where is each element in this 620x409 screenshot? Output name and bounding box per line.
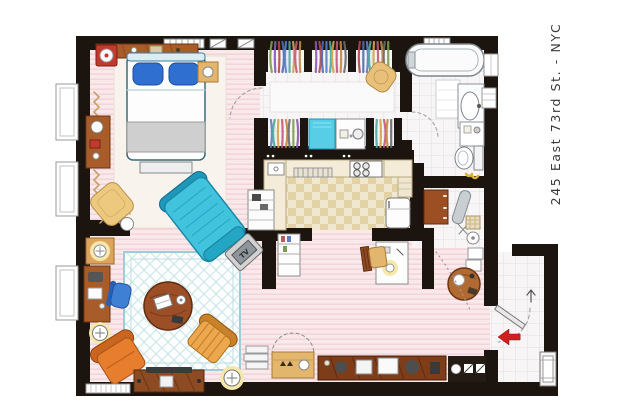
bed-foot-bench [140, 162, 192, 173]
sideboard-item-white-1 [356, 360, 372, 374]
plan-title: 245 East 73rd St. - NYC [548, 19, 570, 209]
nook-lamp [386, 264, 394, 272]
vanity-item-dot [93, 153, 99, 159]
shoe-box-1 [468, 248, 483, 259]
laundry-basket [466, 216, 480, 229]
magazine-stack-1 [246, 346, 268, 353]
washer-door-square [340, 130, 348, 138]
speaker-red-dot [105, 54, 109, 58]
fridge-handle [388, 201, 390, 208]
bedroom-side-dot-table [121, 218, 134, 231]
bookshelf-book-3 [283, 246, 287, 252]
bed-blanket [127, 122, 205, 152]
bed-headboard [127, 53, 205, 61]
vanity-mirror [91, 121, 103, 133]
desk-typewriter [88, 272, 103, 282]
dresser-knob [176, 48, 180, 52]
stereo-item-1 [252, 194, 261, 201]
bed-pillow-left [133, 63, 163, 85]
trunk-dish [299, 360, 309, 370]
washer-door-round [353, 129, 363, 139]
floor-entry-corridor [490, 252, 546, 384]
bathroom-sink-basin [461, 92, 479, 120]
stove-burner-1 [354, 163, 360, 169]
washer-dot [350, 135, 353, 138]
stove-burner-2 [363, 163, 369, 169]
tv-console-knob-2 [197, 379, 201, 383]
stove-burner-3 [354, 170, 360, 176]
kitchen-sink [268, 163, 284, 175]
closet-post-1 [260, 38, 268, 72]
wall-nook-right [422, 241, 434, 289]
kitchen-tall-cabinet [398, 177, 412, 197]
kitchen-counter-right [384, 160, 412, 177]
window-3 [56, 266, 78, 320]
bathtub-faucet [408, 52, 415, 68]
tv-console-box [160, 376, 173, 387]
magazine-stack-2 [244, 354, 268, 361]
window-1 [56, 84, 78, 140]
dresser-tray [150, 46, 162, 53]
sideboard-item-dark-3 [430, 362, 440, 374]
closet-post-3 [348, 38, 356, 72]
vanity-item-red [90, 140, 100, 148]
desk-paper [88, 288, 102, 299]
wall-corridor-top-stub [512, 244, 558, 256]
tv-console-knob-1 [137, 379, 141, 383]
closet-post-2 [304, 38, 312, 72]
bistro-plate [454, 275, 465, 286]
sideboard-knob [325, 361, 330, 366]
wall-kitchen-bottom-right [372, 228, 434, 241]
wall-bathroom-left-a [400, 36, 412, 112]
tv-console-tv [146, 367, 192, 373]
magazine-stack-3 [246, 362, 268, 369]
floor-plan-page: TV 245 East 73rd St. - NYC [0, 0, 620, 409]
bed-pillow-right [169, 63, 199, 85]
window-2 [56, 162, 78, 216]
stereo-item-2 [260, 204, 268, 210]
plan-elements: TV [56, 36, 558, 396]
bistro-cup [470, 274, 475, 279]
sideboard-item-white-2 [378, 358, 398, 374]
wall-tv-corner [262, 241, 276, 289]
wall-right-lower [484, 350, 498, 396]
bathroom-cabinet-roll [474, 127, 480, 133]
wall-inlay-circle [452, 365, 461, 374]
bathroom-wall-niche [482, 88, 496, 108]
sideboard-item-dark-1 [335, 361, 347, 373]
bookshelf-book-1 [281, 236, 285, 242]
closet-post-4 [392, 38, 400, 72]
closet-clothes-top-1 [270, 42, 300, 72]
wall-right-mid [484, 188, 498, 306]
nook-chair-seat [369, 246, 388, 268]
coffee-cup-dot [180, 299, 183, 302]
nightstand-lamp [203, 67, 213, 77]
floor-plan-drawing: TV [0, 0, 620, 409]
bookshelf-book-2 [287, 236, 291, 242]
hallway-lamp-dot [471, 236, 475, 240]
bathroom-cabinet-item [464, 126, 471, 133]
radiator-bottom [86, 384, 130, 393]
bathroom-sink-faucet [477, 104, 481, 108]
desk-item-dot [100, 304, 105, 309]
dresser-dish [132, 48, 137, 53]
closet-clothes-top-2 [316, 42, 346, 72]
toilet-tank [474, 146, 483, 170]
bath-mat [436, 80, 460, 118]
sideboard-item-dark-2 [405, 360, 419, 374]
stove-burner-4 [363, 170, 369, 176]
